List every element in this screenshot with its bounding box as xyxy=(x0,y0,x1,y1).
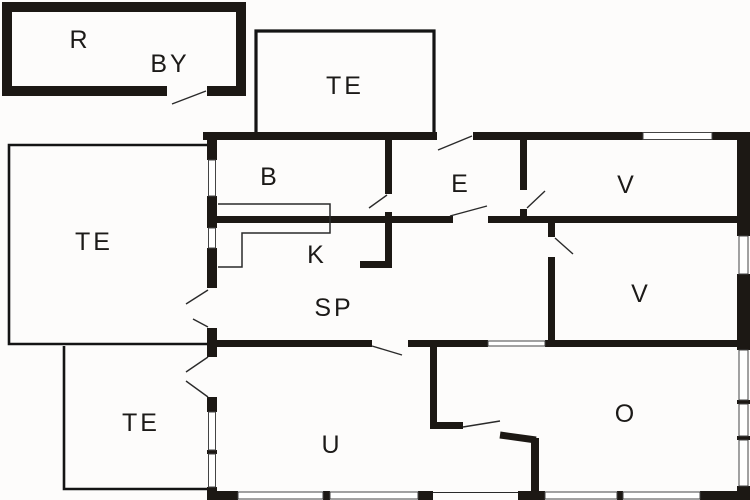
room-label-te-lower: TE xyxy=(122,409,160,437)
window-bottom-u1 xyxy=(238,492,323,499)
window-west-k xyxy=(209,228,216,248)
floor-plan-svg: R BY TE B E V TE K SP V TE U O xyxy=(0,0,750,500)
window-sp-o xyxy=(488,341,545,346)
window-west-u1 xyxy=(209,412,216,450)
room-label-te-left: TE xyxy=(75,228,113,256)
room-label-e: E xyxy=(451,170,471,198)
window-bottom-u2 xyxy=(330,492,418,499)
room-label-b: B xyxy=(260,163,280,191)
room-label-v-upper: V xyxy=(617,171,637,199)
window-east-o2 xyxy=(739,404,748,436)
room-label-v-middle: V xyxy=(631,280,651,308)
window-bottom-o1 xyxy=(545,492,617,499)
room-label-u: U xyxy=(321,431,342,459)
room-label-k: K xyxy=(307,241,327,269)
window-bottom-o2 xyxy=(623,492,700,499)
window-east-v xyxy=(739,236,748,274)
room-label-r: R xyxy=(69,26,90,54)
uo-divider-jog xyxy=(500,435,536,440)
window-top-v xyxy=(643,133,712,140)
room-label-by: BY xyxy=(150,50,189,78)
window-west-b xyxy=(209,160,216,196)
outbuilding-door-opening xyxy=(167,85,207,97)
room-label-sp: SP xyxy=(314,294,353,322)
window-east-o3 xyxy=(739,440,748,486)
room-label-te-top: TE xyxy=(326,72,364,100)
outbuilding-walls xyxy=(7,7,241,91)
floor-plan: R BY TE B E V TE K SP V TE U O xyxy=(0,0,750,500)
window-west-u2 xyxy=(209,454,216,487)
window-east-o1 xyxy=(739,350,748,400)
room-label-o: O xyxy=(615,400,637,428)
